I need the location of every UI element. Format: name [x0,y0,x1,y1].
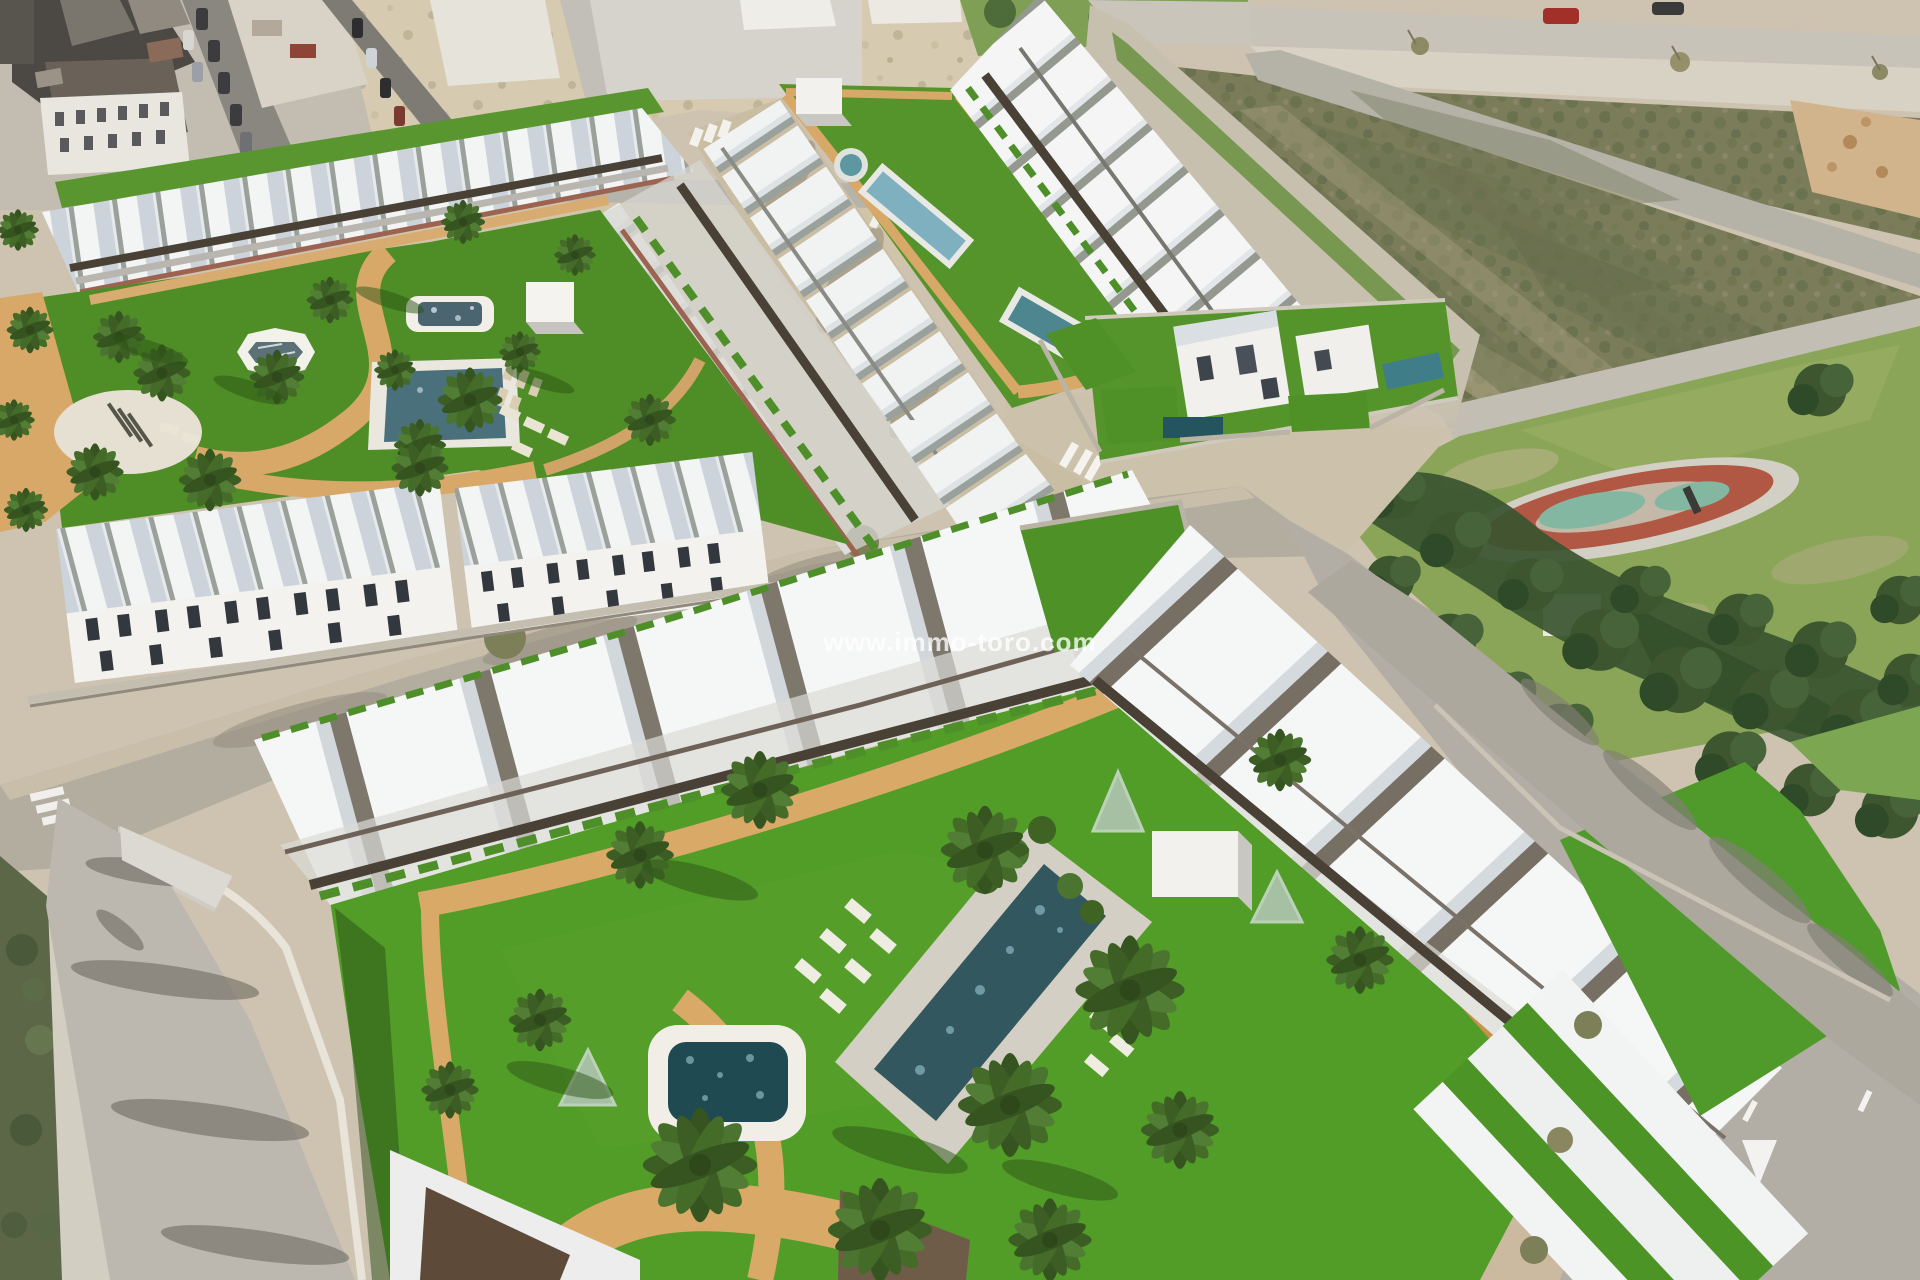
svg-text:www.immo-toro.com: www.immo-toro.com [822,627,1096,657]
